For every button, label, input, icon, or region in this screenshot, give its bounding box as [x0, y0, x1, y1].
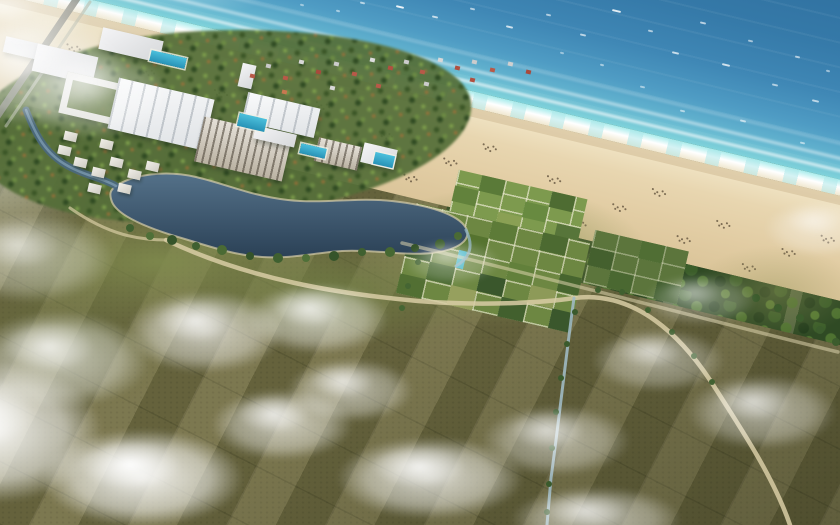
road-or-canal [402, 243, 838, 352]
tree [544, 509, 550, 515]
tree [454, 232, 462, 240]
tree [752, 294, 760, 302]
tree [302, 254, 310, 262]
tree [669, 329, 675, 335]
tree [546, 481, 552, 487]
road-or-canal [0, 0, 80, 118]
tree [405, 283, 411, 289]
tree [619, 289, 625, 295]
aerial-resort-rendering [0, 0, 840, 525]
tree [192, 242, 200, 250]
tree [126, 224, 134, 232]
tree [832, 338, 840, 346]
tree [273, 253, 283, 263]
tree [691, 353, 697, 359]
tree [435, 239, 445, 249]
tree [411, 244, 419, 252]
tree [553, 409, 559, 415]
tree [572, 309, 578, 315]
tree [564, 341, 570, 347]
tree [358, 248, 366, 256]
tree [558, 375, 564, 381]
tree [774, 304, 782, 312]
tree [415, 259, 421, 265]
road-or-canal [26, 110, 116, 186]
tree [167, 235, 177, 245]
tree [146, 232, 154, 240]
tree [385, 247, 395, 257]
road-or-canal [6, 2, 90, 126]
tree [217, 245, 227, 255]
tree [329, 251, 339, 261]
tree [709, 379, 715, 385]
tree [796, 314, 804, 322]
tree [246, 252, 254, 260]
road-or-canal [26, 110, 116, 186]
water-and-roads [0, 0, 840, 525]
tree [645, 307, 651, 313]
tree [595, 287, 601, 293]
road-or-canal [166, 240, 790, 525]
tree [549, 445, 555, 451]
tree [816, 326, 824, 334]
tree [399, 305, 405, 311]
road-or-canal [547, 298, 574, 525]
